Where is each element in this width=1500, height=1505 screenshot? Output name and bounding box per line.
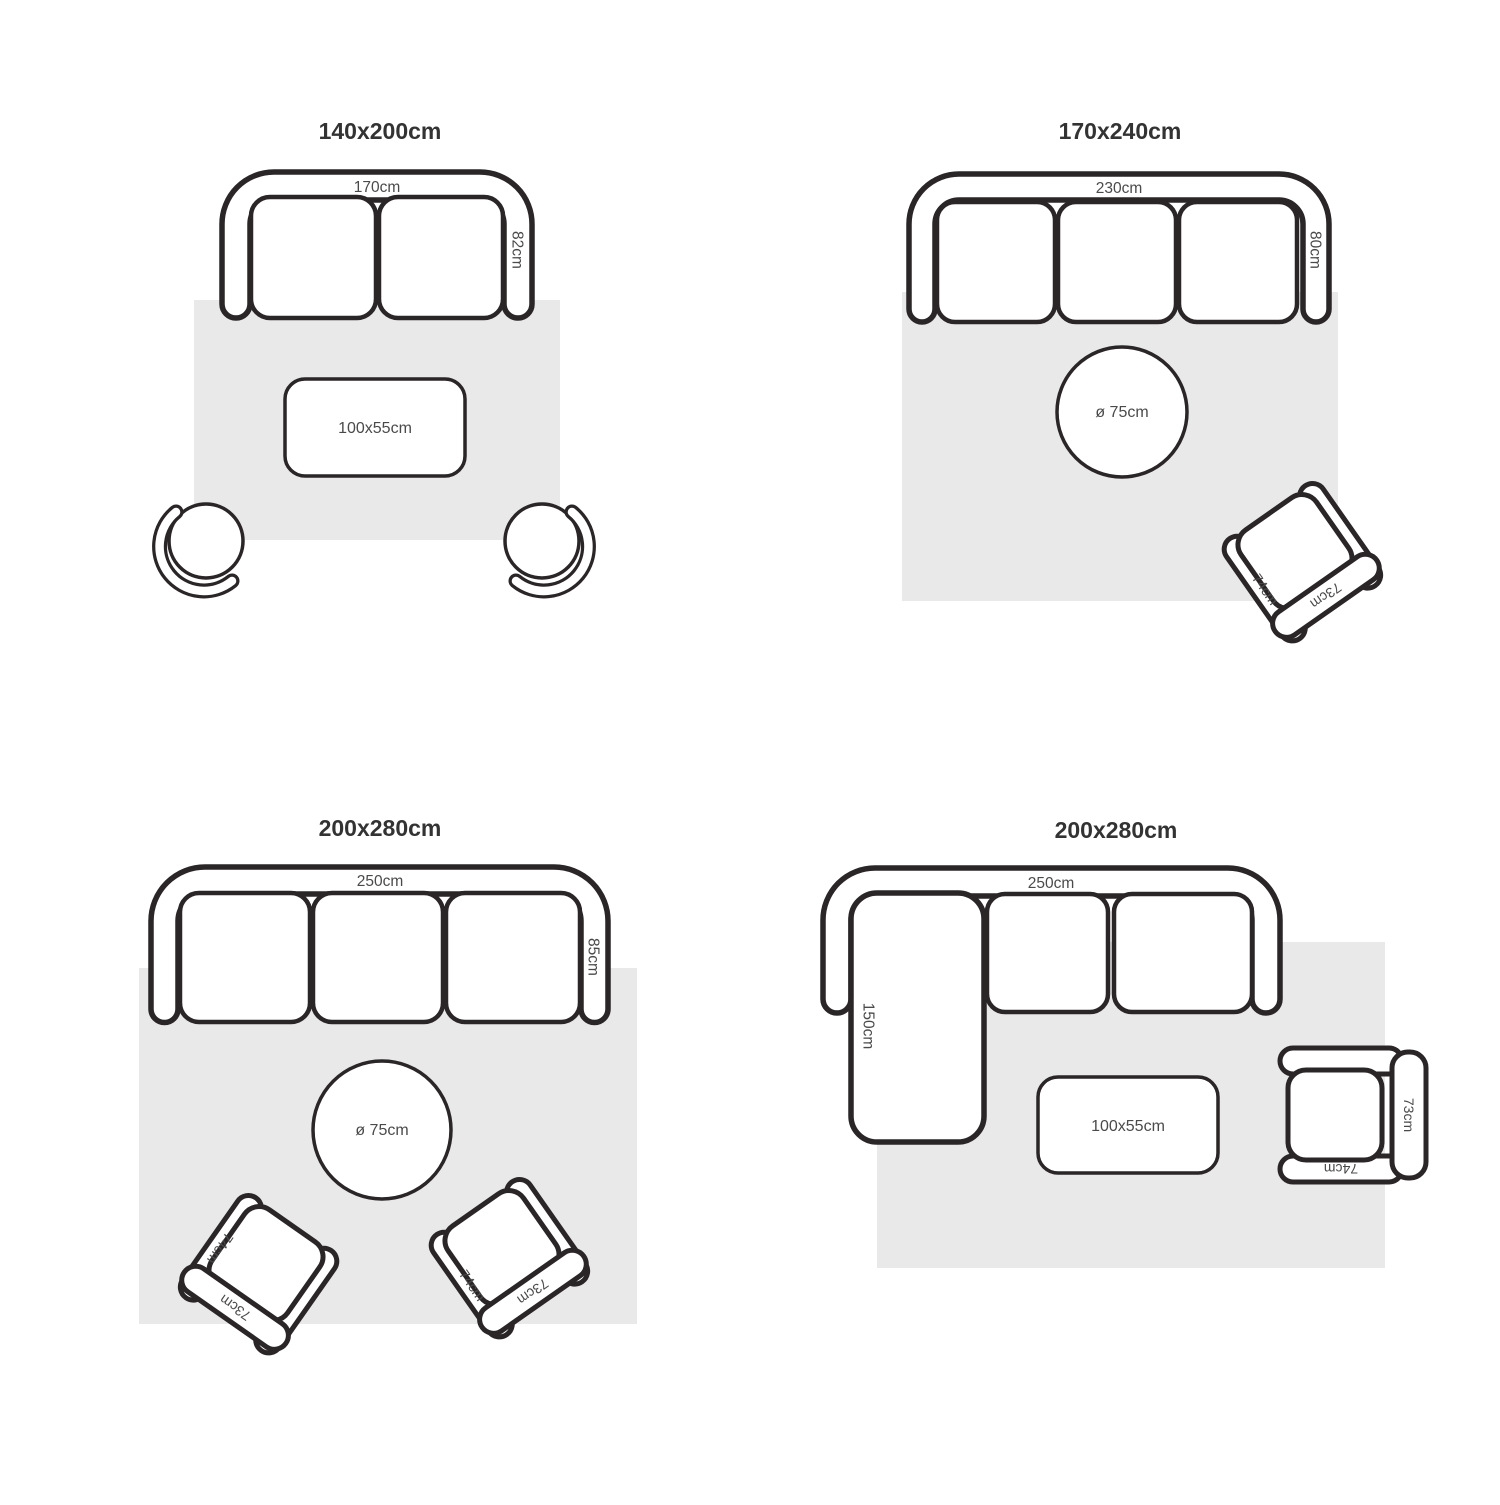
- layout-170x240: 170x240cm 230cm 80cm ø 75cm 74cm 73cm: [902, 118, 1388, 648]
- sofa-3seat: 250cm 85cm: [151, 867, 608, 1022]
- rug-size-guide-canvas: 140x200cm 170cm 82cm 100x55cm 170x: [0, 0, 1500, 1500]
- sofa-3seat: 230cm 80cm: [909, 174, 1329, 322]
- sofa-depth-label: 82cm: [509, 231, 526, 269]
- coffee-table: 100x55cm: [1038, 1077, 1218, 1173]
- armchair: 73cm 74cm: [1280, 1048, 1426, 1182]
- layout-title: 140x200cm: [319, 118, 442, 144]
- coffee-table: 100x55cm: [285, 379, 465, 476]
- armchair-arm-label: 74cm: [1324, 1161, 1358, 1177]
- pouf-left: [160, 504, 243, 591]
- armchair-seat: [1288, 1070, 1382, 1160]
- coffee-table-label: 100x55cm: [338, 420, 412, 437]
- layout-title: 200x280cm: [319, 815, 442, 841]
- sofa-depth-label: 80cm: [1307, 231, 1324, 269]
- sofa-cushion: [180, 893, 310, 1022]
- rug-size-guide: 140x200cm 170cm 82cm 100x55cm 170x: [0, 0, 1500, 1500]
- layout-200x280-chairs: 200x280cm 250cm 85cm ø 75cm 74cm 73cm: [139, 815, 637, 1360]
- layout-title: 170x240cm: [1059, 118, 1182, 144]
- round-table: ø 75cm: [313, 1061, 451, 1199]
- sofa-cushion: [937, 202, 1055, 322]
- sofa-width-label: 230cm: [1096, 180, 1143, 197]
- sofa-cushion: [1114, 894, 1252, 1012]
- layout-title: 200x280cm: [1055, 817, 1178, 843]
- armchair-back-label: 73cm: [1401, 1098, 1417, 1132]
- sofa-width-label: 250cm: [1028, 875, 1075, 892]
- sofa-cushion: [1179, 202, 1297, 322]
- layout-140x200: 140x200cm 170cm 82cm 100x55cm: [160, 118, 589, 591]
- sofa-width-label: 170cm: [354, 179, 401, 196]
- sofa-cushion: [1058, 202, 1176, 322]
- sofa-cushion: [379, 197, 503, 318]
- sofa-chaise-label: 150cm: [860, 1003, 877, 1050]
- sofa-cushion: [251, 197, 376, 318]
- round-table-label: ø 75cm: [355, 1122, 408, 1139]
- sofa-width-label: 250cm: [357, 873, 404, 890]
- sofa-cushion: [313, 893, 443, 1022]
- sofa-cushion: [987, 894, 1108, 1012]
- round-table: ø 75cm: [1057, 347, 1187, 477]
- pouf-right: [505, 504, 588, 591]
- sofa-depth-label: 85cm: [585, 938, 602, 976]
- coffee-table-label: 100x55cm: [1091, 1118, 1165, 1135]
- round-table-label: ø 75cm: [1095, 404, 1148, 421]
- sofa-2seat: 170cm 82cm: [222, 172, 532, 318]
- layout-200x280-sectional: 200x280cm 250cm 150cm 100x55cm 73cm 74cm: [823, 817, 1426, 1268]
- sofa-cushion: [446, 893, 580, 1022]
